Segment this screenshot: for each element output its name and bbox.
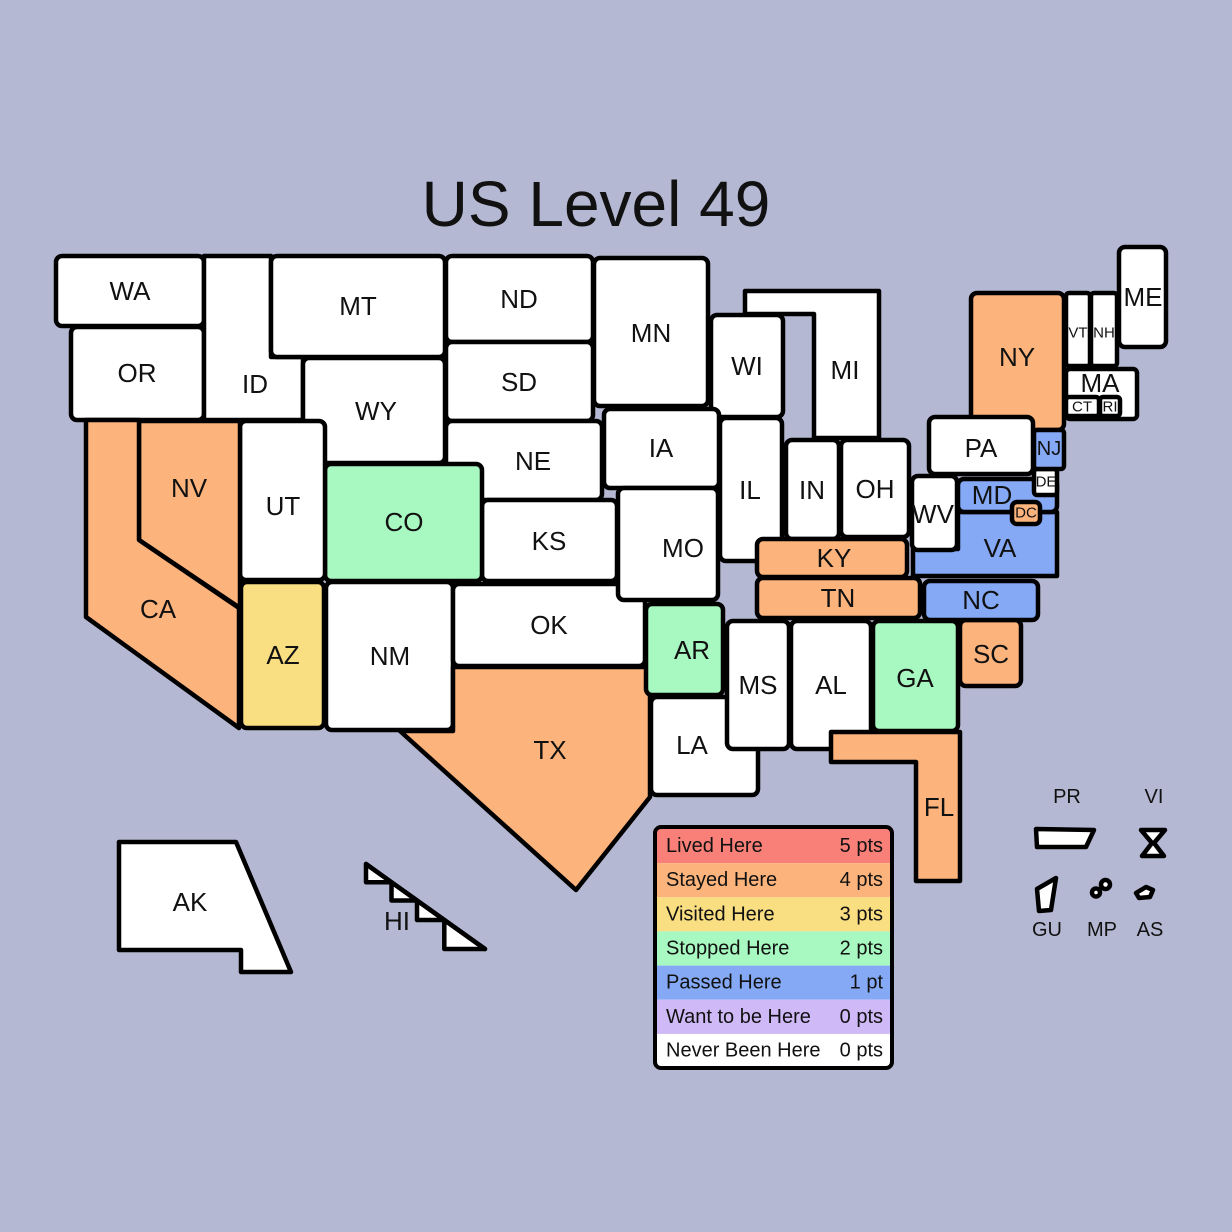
svg-text:SD: SD	[501, 367, 537, 397]
svg-text:US Level 49: US Level 49	[422, 168, 771, 240]
svg-text:TX: TX	[533, 735, 566, 765]
svg-text:KS: KS	[532, 526, 567, 556]
svg-text:0 pts: 0 pts	[840, 1006, 883, 1028]
svg-text:NE: NE	[515, 446, 551, 476]
svg-text:LA: LA	[676, 730, 708, 760]
svg-text:Stayed Here: Stayed Here	[666, 869, 777, 891]
svg-text:CA: CA	[140, 594, 177, 624]
svg-text:FL: FL	[924, 792, 954, 822]
svg-text:MN: MN	[631, 318, 671, 348]
svg-text:5 pts: 5 pts	[840, 835, 883, 857]
svg-text:ID: ID	[242, 369, 268, 399]
svg-text:IL: IL	[739, 475, 761, 505]
svg-text:PR: PR	[1053, 786, 1081, 808]
svg-text:GA: GA	[896, 663, 934, 693]
svg-text:NV: NV	[171, 473, 208, 503]
svg-text:CO: CO	[385, 507, 424, 537]
svg-text:TN: TN	[821, 583, 856, 613]
svg-text:MO: MO	[662, 533, 704, 563]
svg-text:WV: WV	[912, 499, 955, 529]
svg-text:WI: WI	[731, 351, 763, 381]
svg-text:IN: IN	[799, 475, 825, 505]
svg-text:MP: MP	[1087, 919, 1117, 941]
svg-text:4 pts: 4 pts	[840, 869, 883, 891]
svg-text:0 pts: 0 pts	[840, 1040, 883, 1062]
svg-text:HI: HI	[384, 906, 410, 936]
svg-text:MS: MS	[739, 670, 778, 700]
svg-text:Visited Here: Visited Here	[666, 904, 775, 926]
svg-text:AZ: AZ	[266, 640, 299, 670]
svg-text:1 pt: 1 pt	[850, 972, 884, 994]
svg-text:AR: AR	[674, 635, 710, 665]
svg-text:WA: WA	[110, 276, 152, 306]
svg-text:NC: NC	[962, 585, 1000, 615]
svg-text:Never Been Here: Never Been Here	[666, 1040, 821, 1062]
svg-text:Passed Here: Passed Here	[666, 972, 782, 994]
svg-text:AS: AS	[1137, 919, 1164, 941]
svg-text:OK: OK	[530, 610, 568, 640]
svg-text:OR: OR	[118, 358, 157, 388]
svg-text:WY: WY	[355, 396, 397, 426]
svg-text:RI: RI	[1103, 399, 1118, 416]
svg-text:DE: DE	[1036, 474, 1057, 491]
svg-text:VA: VA	[984, 533, 1017, 563]
svg-text:NM: NM	[370, 641, 410, 671]
svg-text:NH: NH	[1093, 325, 1115, 342]
svg-text:SC: SC	[973, 639, 1009, 669]
svg-text:CT: CT	[1072, 399, 1092, 416]
svg-text:2 pts: 2 pts	[840, 938, 883, 960]
svg-text:MD: MD	[972, 480, 1012, 510]
svg-text:DC: DC	[1015, 505, 1037, 522]
svg-text:3 pts: 3 pts	[840, 904, 883, 926]
svg-text:AK: AK	[173, 887, 208, 917]
svg-text:KY: KY	[817, 543, 852, 573]
svg-text:UT: UT	[266, 491, 301, 521]
svg-text:IA: IA	[649, 433, 674, 463]
svg-text:Stopped Here: Stopped Here	[666, 938, 789, 960]
svg-text:OH: OH	[856, 474, 895, 504]
svg-text:Want to be Here: Want to be Here	[666, 1006, 811, 1028]
svg-text:PA: PA	[965, 433, 998, 463]
svg-text:ND: ND	[500, 284, 538, 314]
svg-text:AL: AL	[815, 670, 847, 700]
svg-text:NJ: NJ	[1037, 438, 1061, 460]
svg-text:VI: VI	[1145, 786, 1164, 808]
svg-text:MI: MI	[831, 355, 860, 385]
svg-text:NY: NY	[999, 342, 1035, 372]
svg-text:GU: GU	[1032, 919, 1062, 941]
svg-text:Lived Here: Lived Here	[666, 835, 763, 857]
svg-text:ME: ME	[1124, 282, 1163, 312]
svg-text:MA: MA	[1081, 368, 1121, 398]
svg-text:MT: MT	[339, 291, 377, 321]
svg-text:VT: VT	[1068, 325, 1087, 342]
